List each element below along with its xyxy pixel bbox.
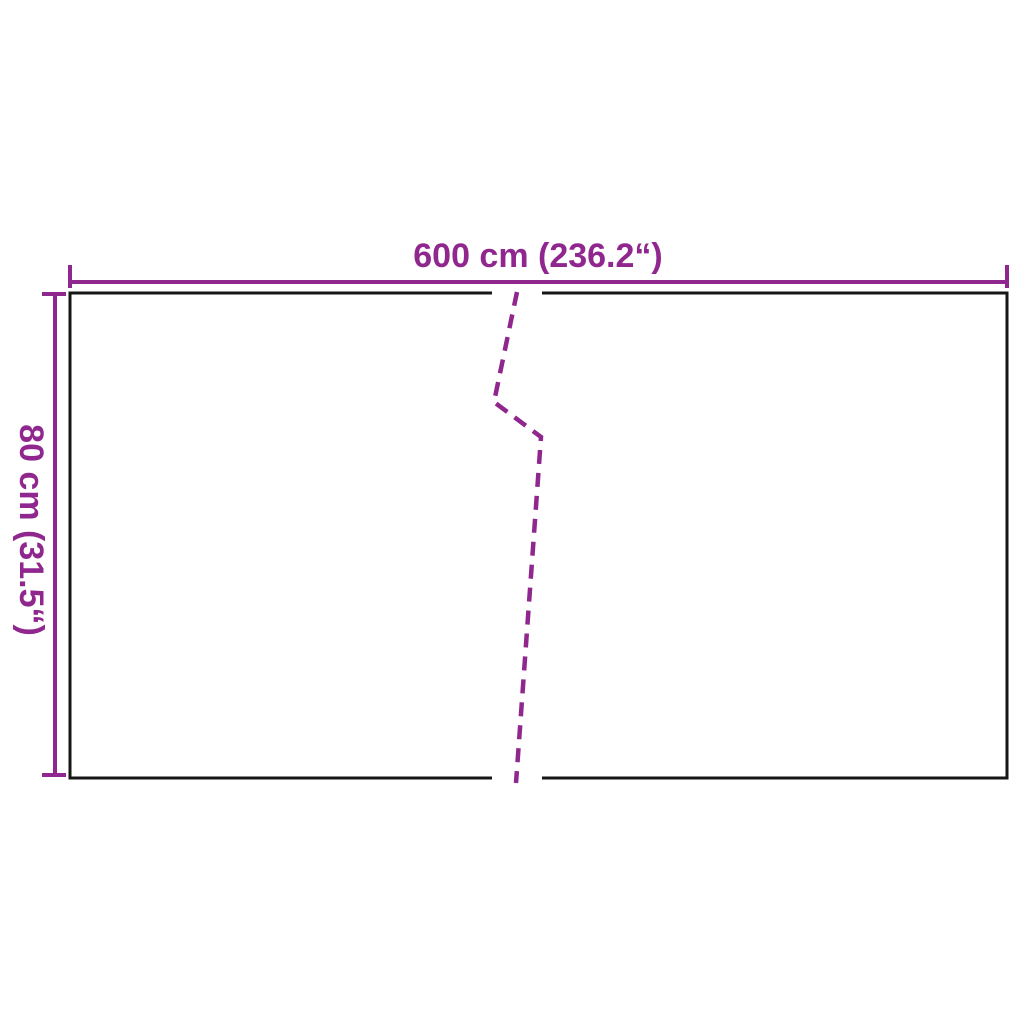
panel-break-line [494, 292, 541, 783]
panel-outline [70, 293, 1007, 778]
height-dimension-label: 80 cm (31.5“) [12, 424, 50, 636]
width-dimension: 600 cm (236.2“) [70, 237, 1007, 288]
height-dimension: 80 cm (31.5“) [12, 294, 66, 776]
width-dimension-label: 600 cm (236.2“) [413, 237, 663, 275]
diagram-canvas: 600 cm (236.2“) 80 cm (31.5“) [0, 0, 1024, 1024]
dimension-diagram: 600 cm (236.2“) 80 cm (31.5“) [0, 0, 1024, 1024]
